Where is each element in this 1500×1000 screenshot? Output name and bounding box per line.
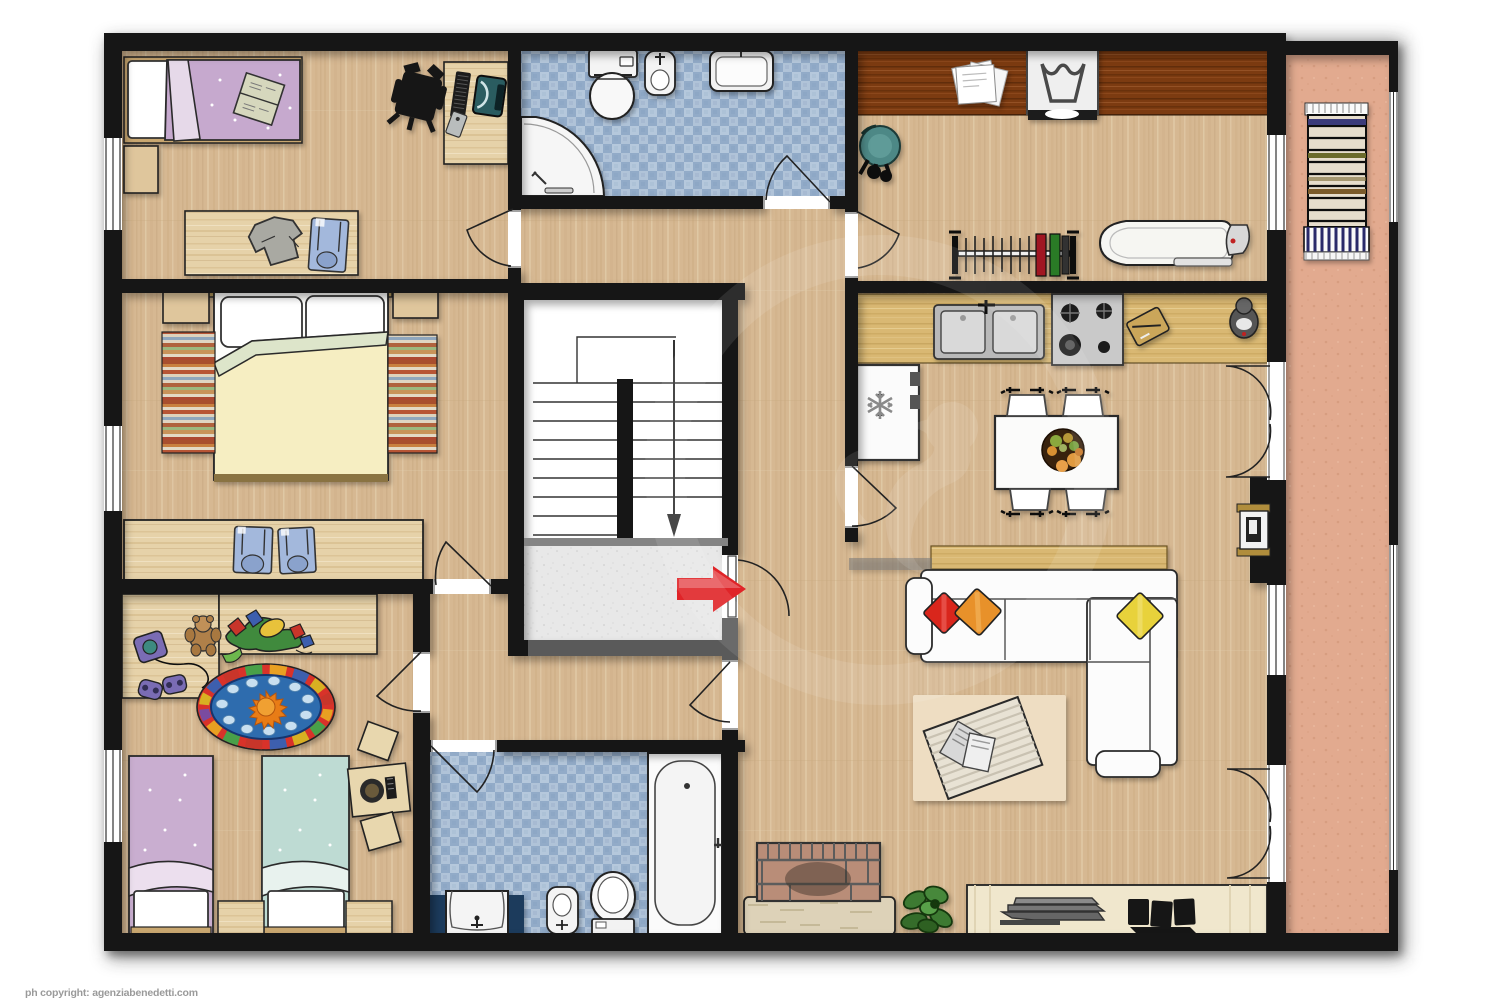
svg-text:ph copyright: agenziabenedetti: ph copyright: agenziabenedetti.com: [25, 987, 198, 999]
